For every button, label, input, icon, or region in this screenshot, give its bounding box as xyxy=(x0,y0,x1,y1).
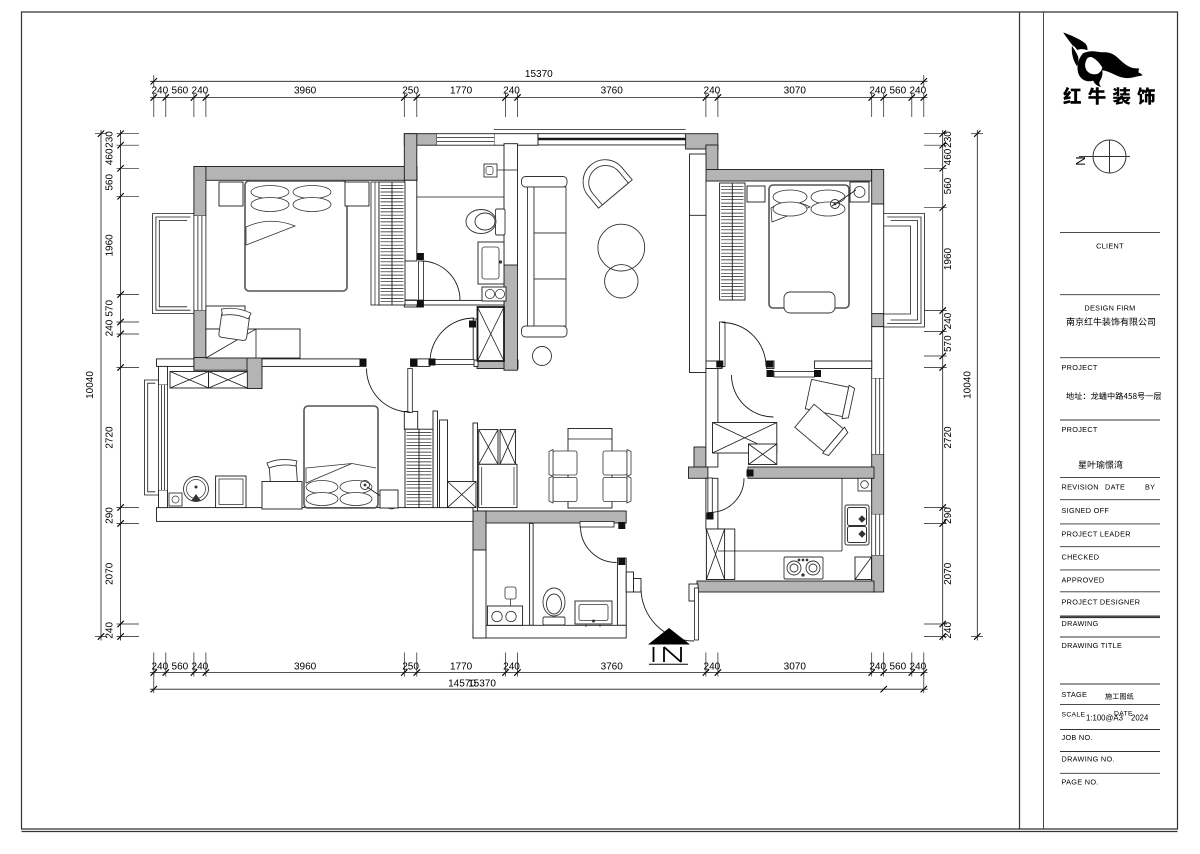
svg-text:DATE: DATE xyxy=(1105,483,1125,492)
svg-text:240: 240 xyxy=(192,86,209,97)
svg-text:CHECKED: CHECKED xyxy=(1062,553,1100,562)
svg-text:STAGE: STAGE xyxy=(1062,690,1088,699)
svg-text:560: 560 xyxy=(172,86,189,97)
svg-text:240: 240 xyxy=(909,662,926,673)
svg-text:460: 460 xyxy=(943,148,954,165)
svg-text:3760: 3760 xyxy=(601,662,624,673)
svg-text:PROJECT: PROJECT xyxy=(1062,425,1098,434)
svg-text:DRAWING TITLE: DRAWING TITLE xyxy=(1062,641,1123,650)
svg-text:560: 560 xyxy=(889,662,906,673)
svg-text:SIGNED OFF: SIGNED OFF xyxy=(1062,506,1110,515)
svg-text:PROJECT DESIGNER: PROJECT DESIGNER xyxy=(1062,598,1141,607)
svg-text:PAGE NO.: PAGE NO. xyxy=(1062,778,1099,787)
svg-text:2070: 2070 xyxy=(943,562,954,585)
svg-text:APPROVED: APPROVED xyxy=(1062,576,1105,585)
svg-text:560: 560 xyxy=(889,86,906,97)
svg-text:460: 460 xyxy=(105,148,116,165)
svg-text:290: 290 xyxy=(943,507,954,524)
svg-text:15370: 15370 xyxy=(525,69,553,80)
svg-text:1960: 1960 xyxy=(105,234,116,257)
svg-text:240: 240 xyxy=(192,662,209,673)
svg-text:JOB NO.: JOB NO. xyxy=(1062,733,1093,742)
svg-text:240: 240 xyxy=(943,312,954,329)
svg-text:240: 240 xyxy=(503,662,520,673)
svg-text:240: 240 xyxy=(105,622,116,639)
svg-text:N: N xyxy=(1073,156,1088,165)
svg-text:2070: 2070 xyxy=(105,562,116,585)
svg-text:SCALE: SCALE xyxy=(1062,712,1086,719)
svg-text:240: 240 xyxy=(943,622,954,639)
svg-text:240: 240 xyxy=(151,662,168,673)
svg-text:240: 240 xyxy=(704,86,721,97)
svg-text:3960: 3960 xyxy=(294,662,317,673)
svg-text:1770: 1770 xyxy=(450,86,473,97)
svg-text:1770: 1770 xyxy=(450,662,473,673)
svg-text:3760: 3760 xyxy=(601,86,624,97)
svg-text:240: 240 xyxy=(869,662,886,673)
svg-text:1960: 1960 xyxy=(943,247,954,270)
svg-text:3070: 3070 xyxy=(784,86,807,97)
svg-text:560: 560 xyxy=(105,174,116,191)
svg-text:240: 240 xyxy=(704,662,721,673)
svg-text:REVISION: REVISION xyxy=(1062,483,1099,492)
svg-text:DRAWING: DRAWING xyxy=(1062,619,1099,628)
svg-text:15370: 15370 xyxy=(468,679,496,690)
svg-text:2720: 2720 xyxy=(105,426,116,449)
svg-text:BY: BY xyxy=(1145,483,1155,492)
svg-text:10040: 10040 xyxy=(85,371,96,399)
svg-text:250: 250 xyxy=(402,86,419,97)
svg-text:DESIGN FIRM: DESIGN FIRM xyxy=(1084,304,1135,313)
svg-text:290: 290 xyxy=(105,507,116,524)
svg-text:10040: 10040 xyxy=(963,371,974,399)
svg-text:CLIENT: CLIENT xyxy=(1096,242,1124,251)
svg-text:DRAWING NO.: DRAWING NO. xyxy=(1062,755,1115,764)
svg-text:570: 570 xyxy=(105,300,116,317)
svg-text:250: 250 xyxy=(402,662,419,673)
svg-text:2024: 2024 xyxy=(1131,714,1149,723)
svg-text:240: 240 xyxy=(105,319,116,336)
svg-text:230: 230 xyxy=(105,131,116,148)
svg-text:240: 240 xyxy=(503,86,520,97)
svg-text:3070: 3070 xyxy=(784,662,807,673)
svg-text:560: 560 xyxy=(943,177,954,194)
svg-text:230: 230 xyxy=(943,131,954,148)
svg-text:3960: 3960 xyxy=(294,86,317,97)
svg-text:240: 240 xyxy=(869,86,886,97)
svg-text:240: 240 xyxy=(151,86,168,97)
svg-text:240: 240 xyxy=(909,86,926,97)
svg-text:2720: 2720 xyxy=(943,426,954,449)
svg-text:PROJECT: PROJECT xyxy=(1062,363,1098,372)
svg-text:570: 570 xyxy=(943,335,954,352)
svg-text:PROJECT LEADER: PROJECT LEADER xyxy=(1062,530,1131,539)
svg-text:560: 560 xyxy=(172,662,189,673)
